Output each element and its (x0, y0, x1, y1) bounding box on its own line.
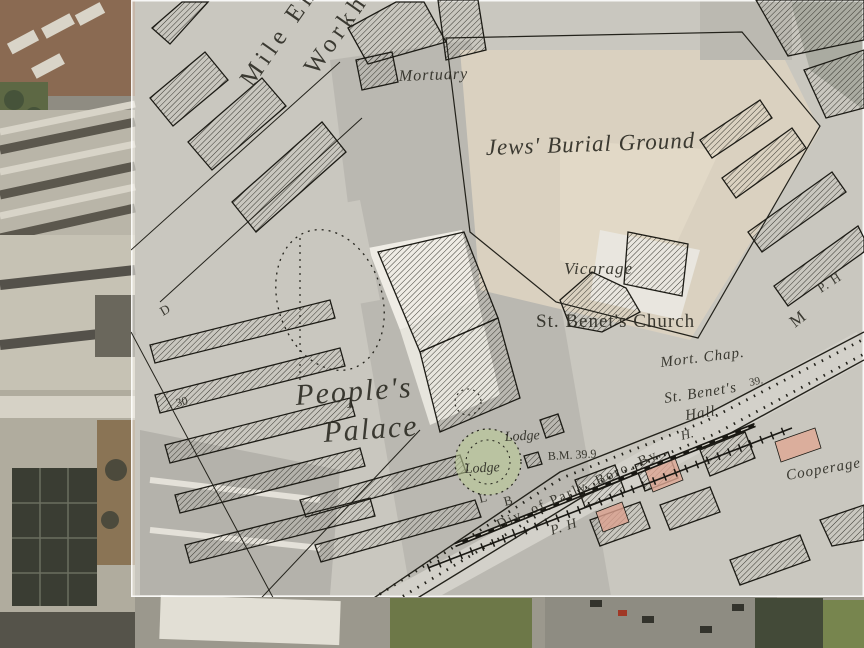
map-paper (131, 0, 864, 597)
map-label: Palace (321, 409, 419, 449)
map-label: Mortuary (398, 66, 469, 85)
historic-map-overlay: Mile EndWorkhouseMortuaryJews' Burial Gr… (0, 0, 864, 648)
map-label: Lodge (503, 428, 540, 445)
map-label: ll (120, 279, 132, 296)
map-label: Vicarage (564, 259, 633, 278)
map-label: B.M. 39.9 (547, 446, 596, 463)
map-label: Lodge (463, 460, 500, 477)
map-viewport[interactable]: Mile EndWorkhouseMortuaryJews' Burial Gr… (0, 0, 864, 648)
map-label: St. Benet's Church (536, 311, 695, 332)
